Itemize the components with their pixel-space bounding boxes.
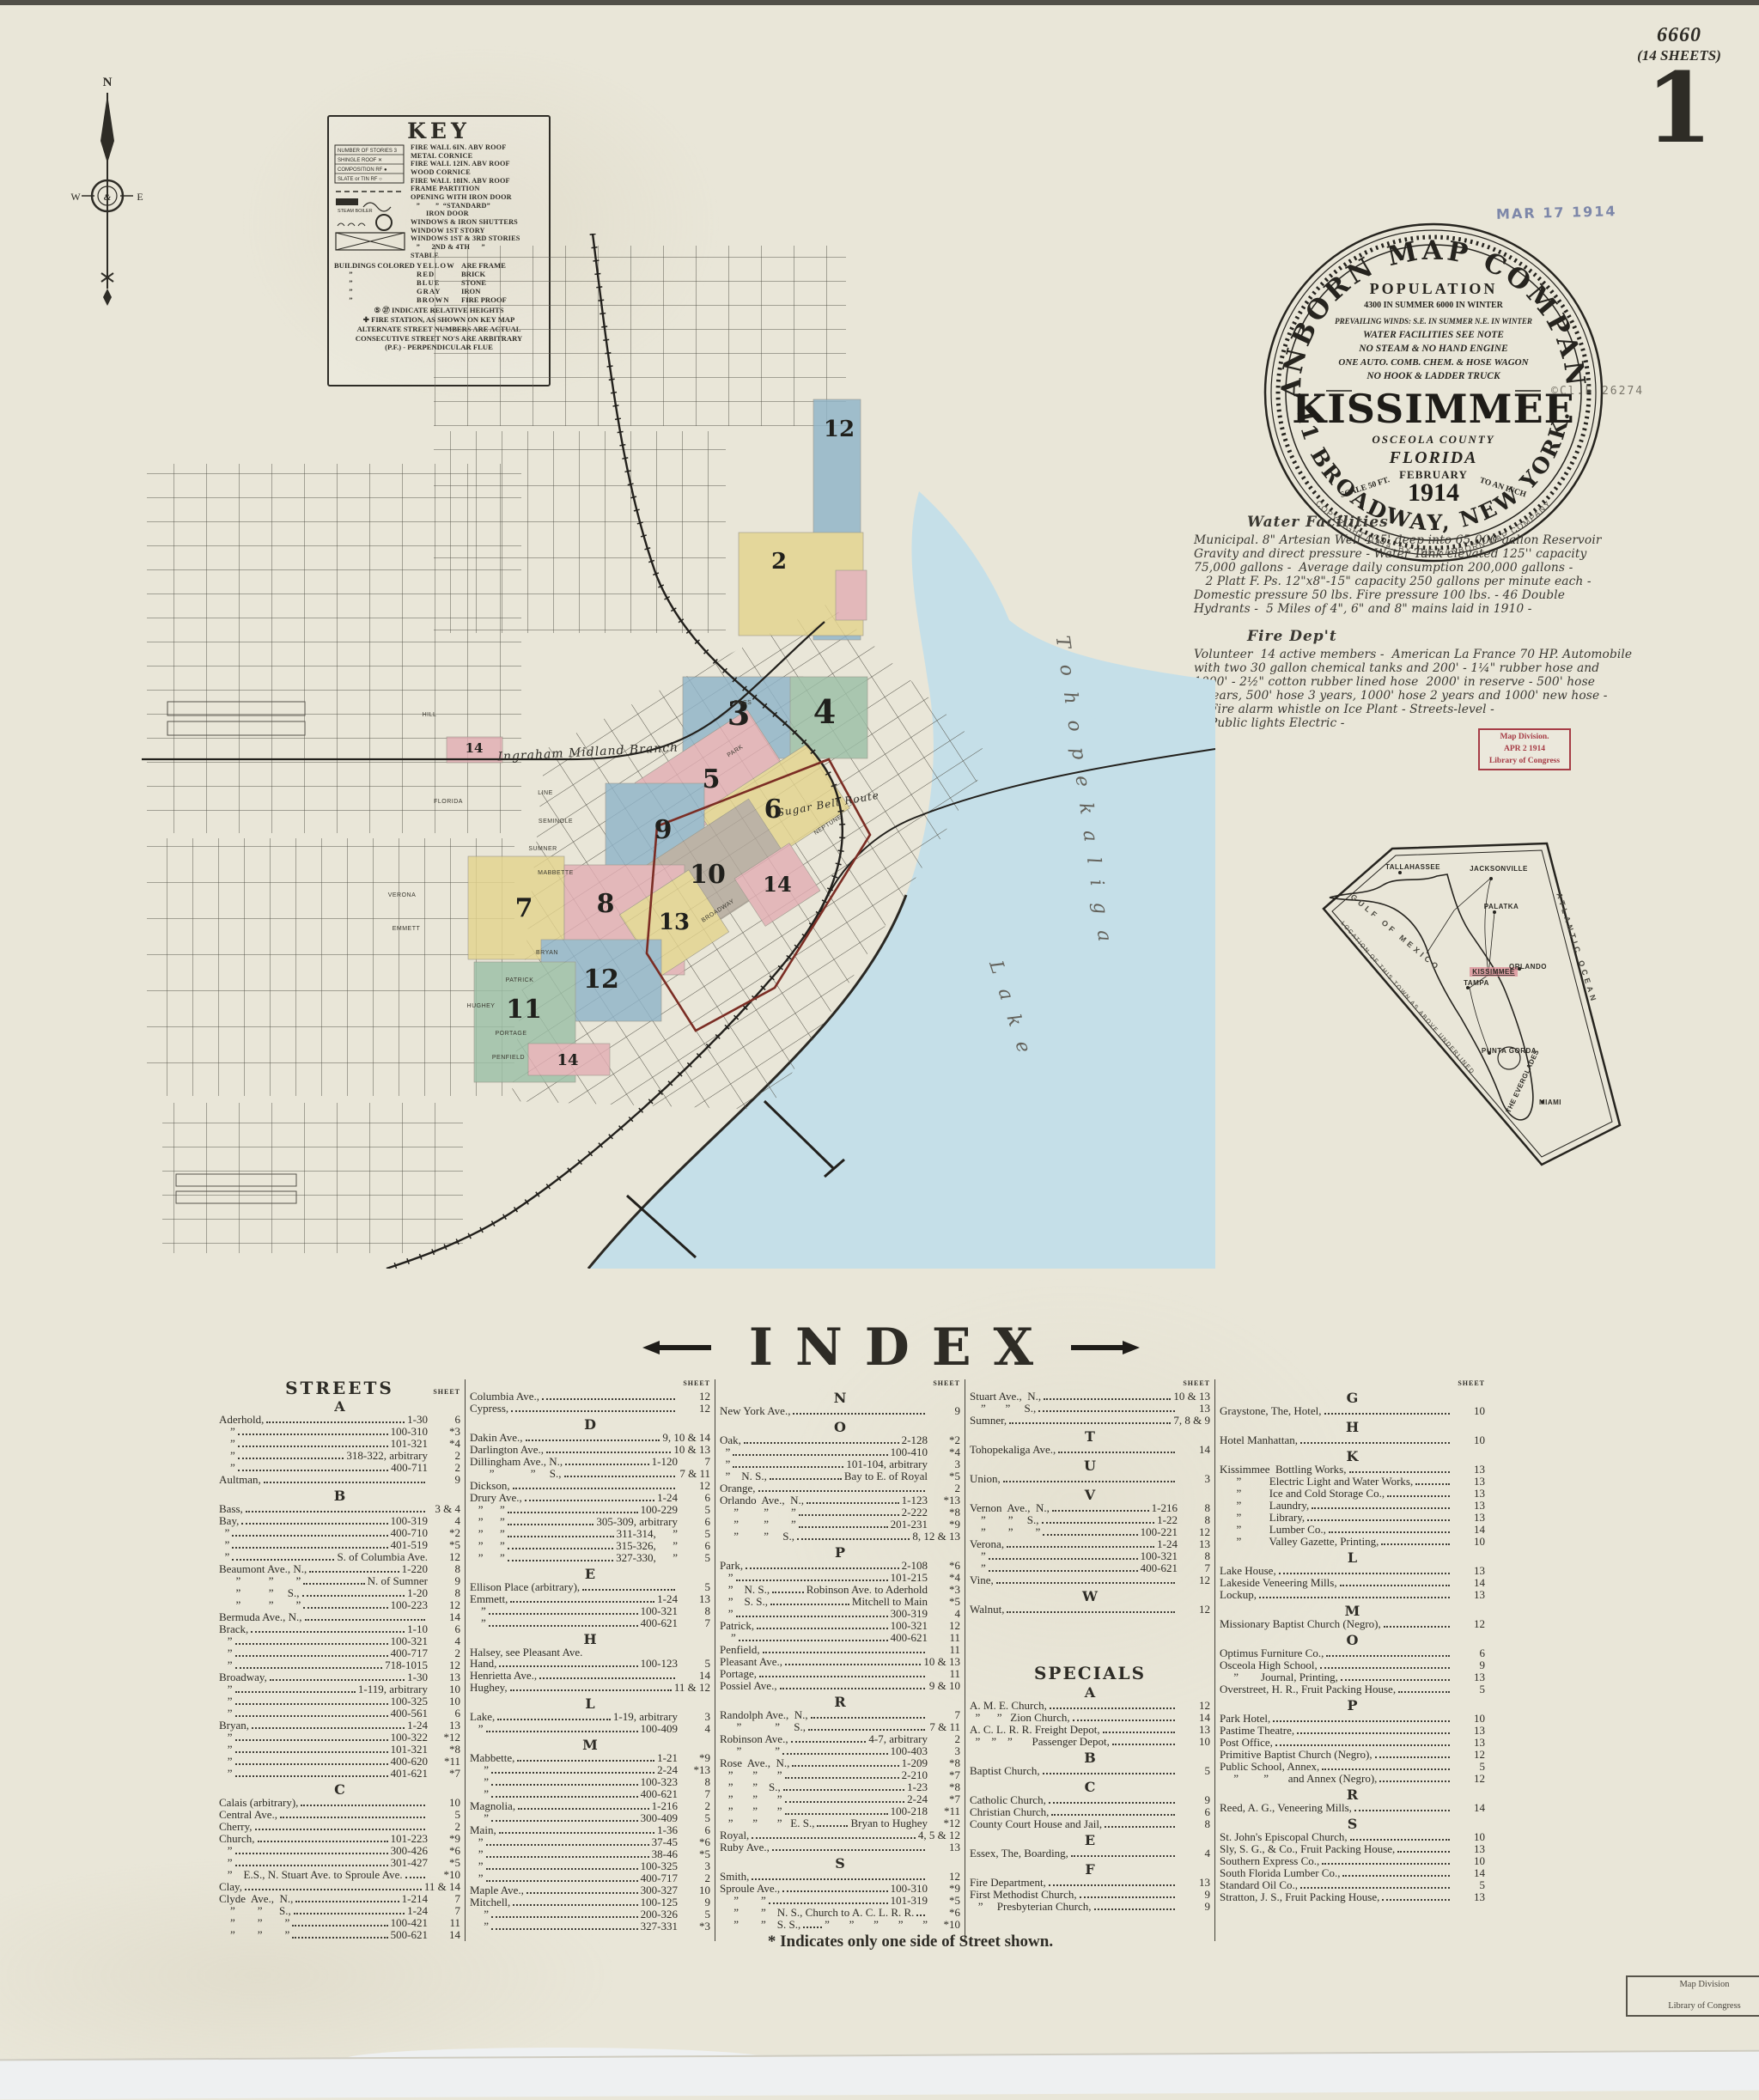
sheet-column-header: SHEET [470,1379,710,1388]
dotted-leader [305,1619,425,1621]
index-entry-sheet: 14 [1178,1444,1210,1455]
index-entry-sheet: 3 [678,1711,710,1722]
index-row: ” Library,13 [1220,1512,1485,1524]
index-entry-name: ” [219,1527,229,1538]
index-letter-header: V [970,1488,1210,1501]
stamp-line: Map Division [1629,1980,1759,1991]
index-entry-name: ” ” ” [219,1917,289,1928]
index-entry-sheet: 9 [1178,1889,1210,1900]
index-entry-sheet: 10 [428,1695,460,1707]
index-entry-name: Orlando Ave., N., [720,1494,804,1506]
index-entry-name: Vernon Ave., N., [970,1502,1050,1513]
index-entry-sheet: *11 [928,1805,960,1817]
index-entry-sheet: 13 [1452,1843,1485,1854]
dotted-leader [517,1760,654,1762]
index-entry-sheet: 8 [1178,1818,1210,1829]
index-entry-sheet: *5 [928,1470,960,1482]
street-label: PATRICK [506,977,534,983]
key-line: IRON DOOR [411,210,544,218]
index-entry-sheet: 4, 5 & 12 [918,1829,960,1841]
index-entry-range: 311-314, ” [617,1528,678,1539]
index-entry-sheet: 10 [678,1884,710,1896]
index-row: ” Valley Gazette, Printing,10 [1220,1536,1485,1548]
index-entry-name: ” [470,1605,486,1616]
index-entry-sheet: *8 [928,1781,960,1793]
index-row: Osceola High School,9 [1220,1659,1485,1671]
index-entry-sheet: 11 [928,1668,960,1679]
index-entry-name: Patrick, [720,1620,754,1631]
index-row: Bass,3 & 4 [219,1503,460,1515]
index-entry-name: ” [219,1732,233,1743]
index-row: Stratton, J. S., Fruit Packing House,13 [1220,1891,1485,1903]
index-entry-name: ” ” ” Passenger Depot, [970,1736,1110,1747]
index-entry-range: 100-323 [641,1776,678,1787]
index-letter-header: B [219,1489,460,1502]
index-row: Possiel Ave.,9 & 10 [720,1680,960,1692]
index-entry-sheet: 12 [678,1480,710,1491]
sheet-column-header: SHEET [433,1388,460,1397]
dotted-leader [489,1613,638,1615]
index-letter-header: U [970,1459,1210,1472]
index-entry-range: Robinson Ave. to Aderhold [806,1584,928,1595]
index-row: ”101-321*4 [219,1438,460,1450]
index-entry-name: Royal, [720,1829,749,1841]
index-row: Dakin Ave.,9, 10 & 14 [470,1432,710,1444]
index-row: Aderhold,1-306 [219,1414,460,1426]
dotted-leader [1324,1413,1450,1415]
dotted-leader [1415,1483,1450,1485]
index-entry-range: 1-22 [1157,1514,1178,1525]
district-number: 10 [690,860,726,890]
index-entry-range: 2-108 [902,1560,928,1571]
index-row: Oak,2-128*2 [720,1434,960,1446]
dotted-leader [405,1877,425,1878]
index-entry-name: ” ” ” E. S., [720,1817,814,1829]
water-facilities-line: 2 Platt F. Ps. 12"x8"-15" capacity 250 g… [1194,575,1615,588]
dotted-leader [235,1703,388,1705]
inset-ocean-label: ATLANTIC OCEAN [1555,892,1598,1005]
index-entry-sheet: 5 [678,1658,710,1669]
index-row: ”301-427*5 [219,1857,460,1869]
index-entry-sheet: 6 [428,1414,460,1425]
index-entry-sheet: *5 [428,1857,460,1868]
index-entry-sheet: 12 [928,1620,960,1631]
index-entry-range: 100-325 [391,1695,428,1707]
index-entry-name: ” ” and Annex (Negro), [1220,1773,1377,1784]
index-entry-sheet: 7, 8 & 9 [1173,1415,1210,1426]
index-row: ” ” S.,1-208 [219,1587,460,1599]
index-entry-range: 1-19, arbitrary [613,1711,678,1722]
street-label: HILL [423,712,437,718]
street-label: BRYAN [536,950,558,956]
index-row: Orlando Ave., N.,1-123*13 [720,1494,960,1507]
index-row: ”400-62111 [720,1632,960,1644]
index-row: Randolph Ave., N.,7 [720,1709,960,1721]
index-entry-sheet: 2 [678,1872,710,1884]
index-entry-name: ” ” ” [219,1599,301,1610]
index-entry-range: Mitchell to Main [852,1596,928,1607]
index-entry-sheet: *6 [928,1560,960,1571]
index-entry-sheet: *7 [928,1769,960,1780]
dotted-leader [772,1849,925,1851]
index-row: County Court House and Jail,8 [970,1818,1210,1830]
index-row: ” ” S. S.,” ” ” ” ”*10 [720,1919,960,1931]
index-entry-name: Maple Ave., [470,1884,524,1896]
dotted-leader [280,1817,425,1818]
index-row: Mitchell,100-1259 [470,1896,710,1908]
key-line: FIRE WALL 18IN. ABV ROOF [411,177,544,186]
index-row: ”400-6217 [470,1617,710,1629]
index-row: Aultman,9 [219,1474,460,1486]
index-letter-header: T [970,1430,1210,1443]
index-entry-sheet: 10 [1452,1405,1485,1416]
florida-outline [1330,874,1533,1120]
index-entry-name: Bermuda Ave., N., [219,1611,302,1622]
index-entry-sheet: 8 [428,1587,460,1598]
dotted-leader [989,1558,1138,1560]
index-row: Hand,100-1235 [470,1658,710,1670]
index-row: Pastime Theatre,13 [1220,1725,1485,1737]
index-entry-name: ” ” [470,1540,505,1551]
index-entry-name: ” Lumber Co., [1220,1524,1326,1535]
index-entry-range: 1-10 [407,1623,428,1634]
index-entry-sheet: 6 [678,1540,710,1551]
index-entry-range: 100-310 [391,1426,428,1437]
index-entry-range: 1-119, arbitrary [358,1683,428,1695]
seal-auto-note: ONE AUTO. COMB. CHEM. & HOSE WAGON [1338,357,1529,368]
fire-dept-line: Volunteer 14 active members - American L… [1194,648,1615,661]
index-entry-sheet: 5 [678,1908,710,1920]
dotted-leader [1058,1452,1175,1453]
index-entry-range: 1-120 [652,1456,678,1467]
index-entry-range: 400-621 [641,1617,678,1628]
index-row: ” ”311-314, ”5 [470,1528,710,1540]
index-row: Sproule Ave.,100-310*9 [720,1883,960,1895]
district-number: 14 [763,872,791,897]
dotted-leader [486,1856,649,1858]
index-entry-name: ” Presbyterian Church, [970,1901,1092,1912]
index-entry-name: ” [219,1647,233,1659]
index-entry-name: ” ” ” [720,1519,796,1530]
dotted-leader [255,1829,425,1830]
index-entry-range: 1-20 [407,1587,428,1598]
index-entry-sheet: 14 [1452,1802,1485,1813]
dotted-leader [1044,1398,1171,1400]
index-entry-sheet: *5 [928,1596,960,1607]
index-row: ” ” ” E. S.,Bryan to Hughey*12 [720,1817,960,1829]
index-entry-name: Lake House, [1220,1565,1276,1576]
index-row: ”100-3214 [219,1635,460,1647]
dotted-leader [785,1813,888,1815]
index-entry-name: ” ” Zion Church, [970,1712,1070,1723]
index-entry-range: 327-330, ” [616,1552,678,1563]
index-entry-name: Hughey, [470,1682,508,1693]
dotted-leader [1342,1875,1450,1877]
index-entry-name: ” [219,1683,233,1695]
index-entry-sheet: 7 [428,1905,460,1916]
index-row: Calais (arbitrary),10 [219,1797,460,1809]
index-entry-name: Clay, [219,1881,242,1892]
index-entry-sheet: 14 [1452,1577,1485,1588]
index-entry-name: ” ” S., [720,1781,781,1793]
index-entry-name: A. C. L. R. R. Freight Depot, [970,1724,1100,1735]
dotted-leader [1350,1839,1450,1841]
dotted-leader [811,1717,925,1719]
dotted-leader [489,1625,638,1627]
index-entry-range: 400-561 [391,1707,428,1719]
index-column: STREETSSHEETAAderhold,1-306 ”100-310*3 ”… [215,1379,465,1941]
dotted-leader [302,1595,405,1597]
key-line: FRAME PARTITION [411,185,544,193]
index-entry-sheet: *8 [928,1507,960,1518]
index-entry-range: 400-710 [391,1527,428,1538]
index-entry-range: 100-221 [1141,1526,1178,1537]
index-entry-name: Fire Department, [970,1877,1046,1888]
seal-year: 1914 [1408,478,1459,507]
index-entry-sheet: 12 [1452,1749,1485,1760]
dotted-leader [508,1548,613,1549]
index-entry-sheet: 8 [428,1563,460,1574]
index-entry-name: ” S. S., [720,1596,768,1607]
district-number: 2 [771,549,787,575]
dotted-leader [499,1665,637,1667]
dotted-leader [241,1523,387,1525]
index-row: Church,101-223*9 [219,1833,460,1845]
index-row: Kissimmee Bottling Works,13 [1220,1464,1485,1476]
dotted-leader [1340,1585,1450,1586]
index-entry-name: ” [219,1695,233,1707]
index-row: Park Hotel,10 [1220,1713,1485,1725]
index-entry-sheet: 12 [928,1871,960,1882]
index-row: ”101-215*4 [720,1572,960,1584]
dotted-leader [1273,1720,1450,1722]
index-entry-sheet: *6 [678,1836,710,1847]
index-entry-sheet: 12 [678,1391,710,1402]
index-entry-sheet: 13 [1178,1538,1210,1549]
index-entry-range: 1-24 [407,1720,428,1731]
index-entry-sheet: 3 [928,1745,960,1756]
index-entry-sheet: 7 [928,1709,960,1720]
index-row: Stuart Ave., N.,10 & 13 [970,1391,1210,1403]
index-entry-name: Vine, [970,1574,994,1586]
index-entry-name: Henrietta Ave., [470,1670,537,1681]
index-letter-header: A [970,1686,1210,1699]
index-entry-name: Osceola High School, [1220,1659,1318,1671]
index-row: Dickson,12 [470,1480,710,1492]
index-entry-name: Portage, [720,1668,757,1679]
index-entry-range: 100-325 [641,1860,678,1872]
index-entry-sheet: 7 & 11 [928,1721,960,1732]
index-entry-sheet: 9 [928,1405,960,1416]
index-entry-name: Brack, [219,1623,248,1634]
index-column: SHEETStuart Ave., N.,10 & 13 ” ” S.,13Su… [965,1379,1214,1941]
index-entry-sheet: 13 [1452,1589,1485,1600]
index-entry-range: 2-128 [902,1434,928,1446]
dotted-leader [770,1478,842,1480]
index-entry-name: Sly, S. G., & Co., Fruit Packing House, [1220,1843,1395,1854]
index-entry-name: Aultman, [219,1474,261,1485]
index-row: New York Ave.,9 [720,1405,960,1417]
index-row: ” E.S., N. Stuart Ave. to Sproule Ave.*1… [219,1869,460,1881]
index-row: Primitive Baptist Church (Negro),12 [1220,1749,1485,1761]
dotted-leader [497,1719,611,1720]
index-entry-range: 1-216 [652,1800,678,1811]
index-entry-name: Possiel Ave., [720,1680,777,1691]
index-row: ”400-620*11 [219,1756,460,1768]
index-row: Catholic Church,9 [970,1794,1210,1806]
dotted-leader [1112,1744,1175,1745]
index-row: Rose Ave., N.,1-209*8 [720,1757,960,1769]
index-row: Southern Express Co.,10 [1220,1855,1485,1867]
index-row: ” ” ”2-210*7 [720,1769,960,1781]
dotted-leader [486,1868,638,1870]
index-entry-sheet: 10 [1452,1855,1485,1866]
index-entry-sheet: 2 [428,1821,460,1832]
index-entry-name: Broadway, [219,1671,267,1683]
key-line: WINDOWS & IRON SHUTTERS [411,218,544,227]
index-row: ” ” and Annex (Negro),12 [1220,1773,1485,1785]
index-entry-range: 100-410 [891,1446,928,1458]
index-entry-sheet: 4 [428,1635,460,1647]
index-row: Vine,12 [970,1574,1210,1586]
dotted-leader [797,1538,910,1540]
index-row: Portage,11 [720,1668,960,1680]
index-entry-range: 100-125 [641,1896,678,1908]
index-entry-sheet: *7 [428,1768,460,1779]
index-entry-sheet: 10 [1178,1736,1210,1747]
index-entry-range: 2-222 [902,1507,928,1518]
index-entry-name: Tohopekaliga Ave., [970,1444,1056,1455]
index-columns: STREETSSHEETAAderhold,1-306 ”100-310*3 ”… [215,1379,1567,1941]
index-entry-range: 101-104, arbitrary [846,1458,928,1470]
index-letter-header: S [1220,1817,1485,1830]
index-entry-name: ” ” ” [720,1805,782,1817]
sheet-column-header: SHEET [970,1379,1210,1388]
index-row: ” Laundry,13 [1220,1500,1485,1512]
florida-inset-map: TALLAHASSEEJACKSONVILLEPALATKAORLANDOKIS… [1317,833,1759,1224]
street-label: BASS [734,700,752,706]
index-entry-name: ” [219,1462,235,1473]
index-row: ”37-45*6 [470,1836,710,1848]
dotted-leader [1381,1543,1450,1545]
index-entry-name: ” [219,1744,233,1755]
index-letter-header: N [720,1391,960,1404]
dotted-leader [1038,1410,1175,1412]
index-row: Main,1-366 [470,1824,710,1836]
street-label: PORTAGE [495,1031,526,1037]
svg-text:NUMBER OF STORIES 3: NUMBER OF STORIES 3 [338,149,398,154]
index-entry-sheet: 8, 12 & 13 [912,1531,960,1542]
index-entry-name: Hand, [470,1658,496,1669]
index-row: Ellison Place (arbitrary),5 [470,1581,710,1593]
stamp-line: Map Division. [1481,732,1568,744]
index-entry-name: ” ” S., [470,1468,562,1479]
index-entry-name: Mabbette, [470,1752,514,1763]
index-entry-range: Bryan to Hughey [850,1817,928,1829]
fire-dept-text: Volunteer 14 active members - American L… [1194,648,1615,730]
index-row: ” S. S.,Mitchell to Main*5 [720,1596,960,1608]
index-entry-range: 2-24 [657,1764,678,1775]
svg-text:&: & [104,192,112,203]
dotted-leader [491,1916,638,1918]
dotted-leader [1279,1573,1450,1574]
index-entry-name: Drury Ave., [470,1492,522,1503]
index-entry-name: ” ” S., [970,1514,1039,1525]
dotted-leader [1375,1756,1450,1758]
index-entry-name: ” ” S., [970,1403,1036,1414]
index-row: Verona,1-2413 [970,1538,1210,1550]
street-label: MABBETTE [538,870,574,876]
index-entry-range: 1-24 [1157,1538,1178,1549]
dotted-leader [1379,1780,1450,1782]
water-facilities-title: Water Facilities [1247,514,1615,531]
index-entry-sheet: *3 [678,1920,710,1932]
index-entry-name: Catholic Church, [970,1794,1046,1805]
index-letter-header: R [1220,1788,1485,1801]
index-row: ”100-322*12 [219,1732,460,1744]
dotted-leader [1354,1810,1450,1811]
index-entry-sheet: 9 [428,1474,460,1485]
index-row: Clay,11 & 14 [219,1881,460,1893]
index-entry-name: ” ” [470,1516,505,1527]
index-entry-name: Ruby Ave., [720,1841,770,1853]
index-footnote: * Indicates only one side of Street show… [610,1933,1211,1951]
index-row: ” ” S.,7 & 11 [470,1468,710,1480]
index-row: ” Electric Light and Water Works,13 [1220,1476,1485,1488]
index-letter-header: M [1220,1604,1485,1617]
index-row: Maple Ave.,300-32710 [470,1884,710,1896]
seal-winds: PREVAILING WINDS: S.E. IN SUMMER N.E. IN… [1335,317,1532,326]
dotted-leader [491,1820,638,1822]
dotted-leader [1275,1744,1450,1746]
index-entry-sheet: *9 [678,1752,710,1763]
dotted-leader [513,1488,675,1489]
index-entry-range: 100-409 [641,1723,678,1734]
index-entry-name: Park, [720,1560,743,1571]
index-row: ” ” ”100-218*11 [720,1805,960,1817]
index-entry-sheet: 13 [1452,1464,1485,1475]
fire-dept-line: 4 years, 500' hose 3 years, 1000' hose 2… [1194,689,1615,703]
index-entry-name: Hotel Manhattan, [1220,1434,1298,1446]
index-entry-sheet: *4 [928,1572,960,1583]
index-row: Overstreet, H. R., Fruit Packing House,5 [1220,1683,1485,1695]
index-streets-header: STREETS [219,1379,460,1397]
dotted-leader [303,1583,364,1585]
dotted-leader [292,1925,387,1927]
index-entry-sheet: 10 & 13 [923,1656,960,1667]
water-facilities-line: Domestic pressure 50 lbs. Fire pressure … [1194,588,1615,602]
dotted-leader [1049,1802,1175,1804]
sanborn-map-sheet: { "sheet": {"atlas_number": "6660", "she… [0,0,1759,2086]
index-entry-sheet: 2 [678,1800,710,1811]
index-entry-name: ” [219,1438,235,1449]
index-entry-name: ” ” [470,1552,505,1563]
index-entry-sheet: 14 [678,1670,710,1681]
index-entry-range: 100-319 [391,1515,428,1526]
index-row: Christian Church,6 [970,1806,1210,1818]
seal-population: POPULATION [1370,280,1498,297]
dotted-leader [782,1753,888,1755]
index-entry-sheet: 13 [1452,1512,1485,1523]
index-entry-sheet: *6 [428,1845,460,1856]
index-entry-range: 400-621 [891,1632,928,1643]
index-row: ” ”100-4033 [720,1745,960,1757]
index-entry-range: 4-7, arbitrary [868,1733,928,1744]
index-entry-sheet: *5 [928,1895,960,1906]
index-entry-name: Baptist Church, [970,1765,1040,1776]
index-entry-sheet: 13 [1452,1476,1485,1487]
dotted-leader [238,1470,388,1471]
